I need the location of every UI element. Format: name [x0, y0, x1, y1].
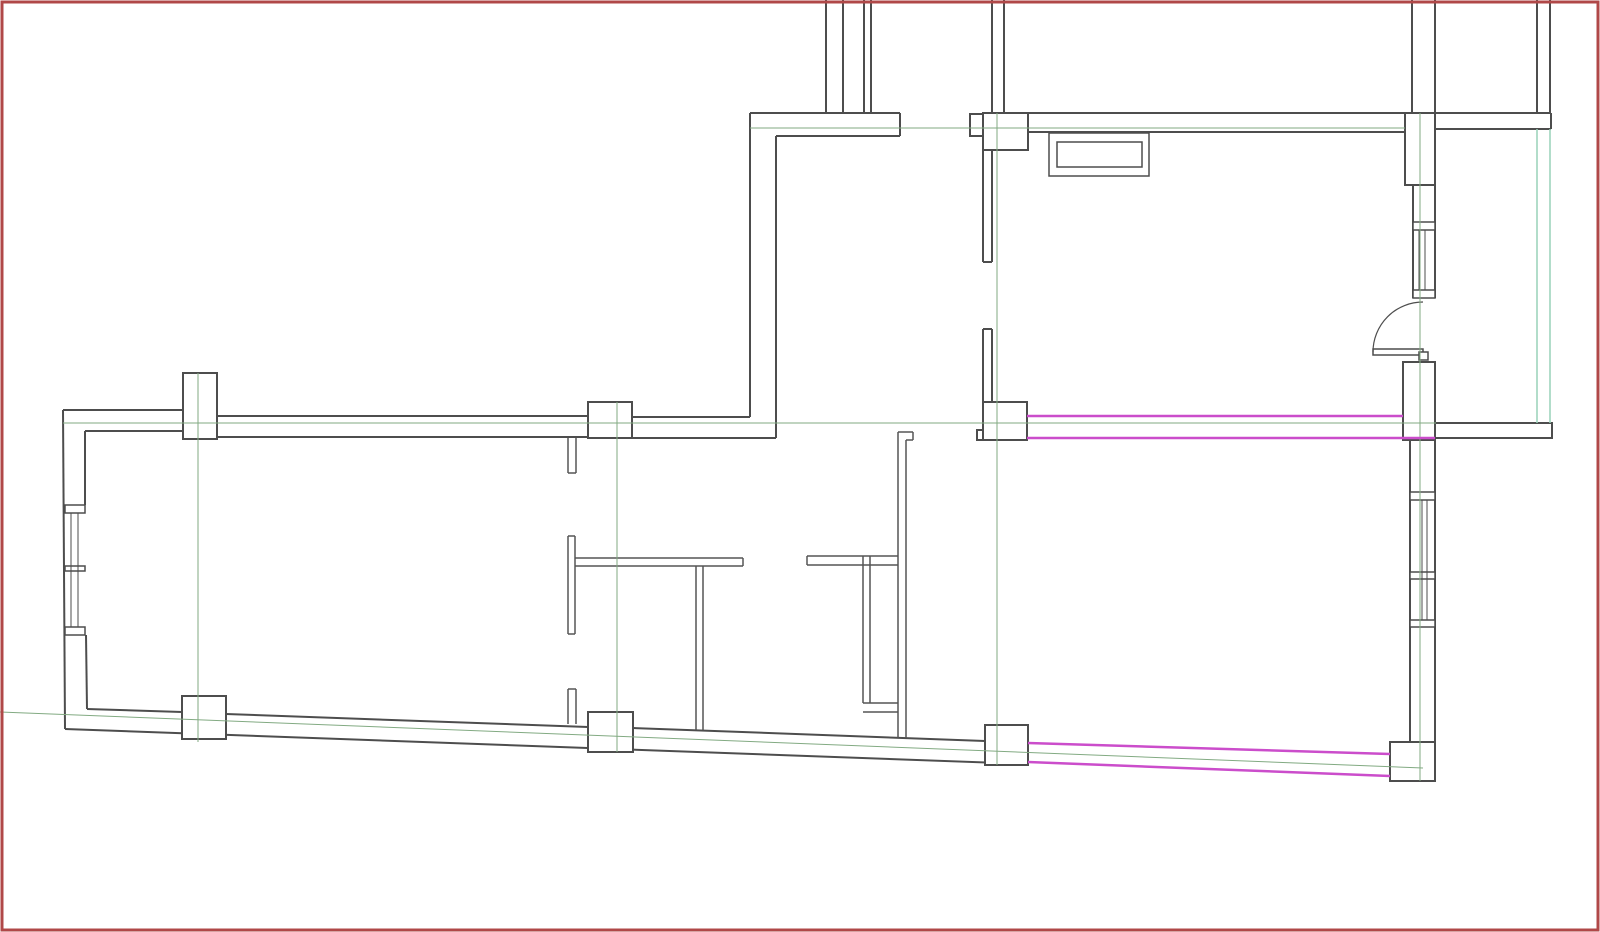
- column: [1435, 423, 1552, 438]
- fixture-rect: [1057, 142, 1142, 167]
- fixture-rect: [65, 627, 85, 635]
- wall-line: [226, 714, 588, 727]
- column: [1403, 362, 1435, 440]
- wall-line: [86, 635, 87, 709]
- column: [588, 402, 632, 438]
- fixture-rect: [1410, 620, 1435, 627]
- column: [588, 712, 633, 752]
- column: [983, 402, 1027, 440]
- fixture-rect: [1373, 349, 1423, 355]
- floor-plan-canvas: [0, 0, 1600, 932]
- fixture-rect: [1413, 222, 1435, 230]
- floorplan-page: [0, 0, 1600, 932]
- column: [983, 113, 1028, 150]
- column: [183, 373, 217, 439]
- page-border: [2, 2, 1598, 930]
- fixture-rect: [65, 505, 85, 513]
- column: [182, 696, 226, 739]
- fixture-rect: [1410, 492, 1435, 500]
- fixture-rect: [1413, 290, 1435, 298]
- column: [970, 114, 983, 136]
- highlight-line-magenta: [1028, 743, 1390, 754]
- fixture-rect: [65, 566, 85, 571]
- wall-line: [87, 709, 182, 712]
- column: [1390, 742, 1435, 781]
- column: [985, 725, 1028, 765]
- door-swing-arc: [1373, 302, 1423, 352]
